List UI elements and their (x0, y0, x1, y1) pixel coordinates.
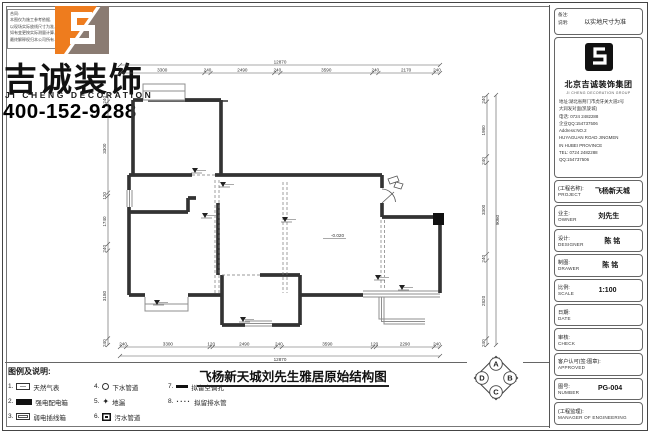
titleblock-field-date: 日期:DATE (554, 304, 643, 327)
field-label-cn: 审核: (558, 334, 575, 341)
dim-overall-label: 12870 (274, 60, 287, 65)
notes-label-2: 说明: (558, 19, 568, 27)
legend-item-label: 天然气表 (33, 382, 59, 392)
strong-box-icon (16, 399, 32, 405)
dim-label: 240 (102, 245, 107, 253)
dim-overall-label: 9060 (495, 214, 500, 225)
titleblock-company: 北京吉诚装饰集团 JI CHENG DECORATION GROUP 地址:湖北… (554, 37, 643, 178)
field-label-en: DRAWER (558, 266, 579, 271)
titleblock-notes: 备注: 说明: 以实地尺寸为准 (554, 8, 643, 35)
dim-label: 240 (102, 339, 107, 347)
titleblock-field-drawer: 制图:DRAWER陈 铭 (554, 254, 643, 277)
dim-label: 240 (119, 342, 127, 347)
dim-label: 240 (371, 68, 379, 73)
field-value: 陈 铭 (581, 260, 639, 270)
legend-item: 6.污水管道 (94, 410, 168, 423)
legend-item-label: 强电配电箱 (35, 397, 68, 407)
notes-value: 以实地尺寸为准 (571, 17, 639, 26)
legend-item-number: 4. (94, 383, 99, 390)
dim-label: 240 (204, 68, 212, 73)
legend-item: 4.下水管道 (94, 380, 168, 393)
field-label-en: SCALE (558, 291, 574, 296)
field-value: 1:100 (576, 287, 639, 294)
dim-label: 2290 (400, 342, 411, 347)
compass-label-a: A (493, 360, 499, 369)
company-addr2: 大润发对面(凯旋城) (559, 105, 638, 112)
field-label-cn: 业主: (558, 210, 577, 217)
dim-label: 120 (102, 192, 107, 200)
dim-label: 120 (207, 342, 215, 347)
dim-label: 240 (481, 254, 486, 262)
dim-label: 240 (433, 68, 441, 73)
dim-label: 120 (371, 342, 379, 347)
legend-item: 2.强电配电箱 (8, 395, 94, 408)
dim-label: 3300 (102, 143, 107, 154)
dim-label: 240 (102, 96, 107, 104)
field-label-en: OWNER (558, 217, 577, 222)
field-label-en: DESIGNER (558, 242, 584, 247)
titleblock-field-owner: 业主:OWNER刘先生 (554, 205, 643, 228)
gas-meter-icon (16, 383, 30, 390)
legend-item-number: 3. (8, 413, 13, 420)
company-addr1: 地址:湖北省荆门市虎牙关大道2号 (559, 98, 638, 105)
sewage-box-icon (102, 413, 111, 421)
field-label-en: CHECK (558, 341, 575, 346)
dim-label: 2170 (401, 68, 412, 73)
drawing-title: 飞杨新天城刘先生雅居原始结构图 (168, 366, 418, 385)
company-addr-en2: HUYAGUAN ROAD JINGMEN (559, 134, 638, 141)
dim-label: 2820 (481, 295, 486, 306)
legend-item-number: 8. (168, 398, 173, 405)
compass-label-b: B (507, 374, 513, 383)
titleblock-fields: (工程名称):PROJECT飞杨新天城业主:OWNER刘先生设计:DESIGNE… (554, 180, 643, 425)
field-label-en: PROJECT (558, 192, 584, 197)
floor-level-label: -0.020 (331, 233, 344, 238)
dotted-pipe-icon: ···· (176, 397, 191, 406)
company-tel-en: TEL: 0724 2482288 (559, 149, 638, 156)
company-name: 北京吉诚装饰集团 (557, 79, 640, 90)
company-qq-cn: 企业QQ:154737506 (559, 120, 638, 127)
field-label-cn: 日期: (558, 309, 571, 316)
weak-box-icon (16, 413, 30, 420)
titleblock-field-designer: 设计:DESIGNER陈 铭 (554, 229, 643, 252)
floor-plan: 1287033002402490240359024021702402403300… (100, 55, 550, 365)
field-value: 陈 铭 (586, 236, 639, 246)
field-label-en: MANAGER OF ENGINEERING (558, 415, 627, 420)
field-label-cn: 图号: (558, 383, 579, 390)
field-label-cn: 制图: (558, 259, 579, 266)
dim-label: 3300 (163, 342, 174, 347)
dim-label: 240 (273, 68, 281, 73)
dim-label: 240 (433, 342, 441, 347)
dim-label: 3300 (157, 68, 168, 73)
floor-drain-icon: ✦ (102, 398, 109, 406)
concrete-column (433, 213, 444, 225)
field-label-cn: 客户认可(签:图章): (558, 358, 601, 365)
titleblock-field-project: (工程名称):PROJECT飞杨新天城 (554, 180, 643, 203)
legend-item-number: 1. (8, 383, 13, 390)
dim-label: 2490 (239, 342, 250, 347)
dim-label: 3590 (321, 68, 332, 73)
jicheng-logo-icon (52, 4, 112, 58)
dim-label: 3590 (322, 342, 333, 347)
legend-item: 3.弱电插线箱 (8, 410, 94, 423)
compass-label-c: C (493, 388, 499, 397)
dim-label: 3300 (481, 204, 486, 215)
band-separator-right (523, 362, 549, 363)
dim-label: 3180 (102, 290, 107, 301)
dim-label: 1980 (481, 125, 486, 136)
dim-label: 240 (275, 342, 283, 347)
field-value: 飞杨新天城 (586, 186, 639, 196)
field-value: PG-004 (581, 385, 639, 392)
field-label-en: DATE (558, 316, 571, 321)
titleblock-field-number: 图号:NUMBERPG-004 (554, 378, 643, 401)
company-qq-en: QQ:154737506 (559, 156, 638, 163)
dim-label: 240 (481, 96, 486, 104)
entry-door-arc (382, 176, 403, 203)
title-block: 备注: 说明: 以实地尺寸为准 北京吉诚装饰集团 JI CHENG DECORA… (549, 5, 646, 428)
legend-item: 1.天然气表 (8, 380, 94, 393)
drain-circle-icon (102, 383, 109, 390)
company-addr-en3: IN HUBEI PROVINCE (559, 142, 638, 149)
legend-item-number: 2. (8, 398, 13, 405)
legend-item-label: 拟留排水管 (194, 397, 227, 407)
dim-label: 240 (481, 339, 486, 347)
drawing-sheet: 合同: 本图仅为施工参考依据,以现场实际放线尺寸为准,如有变更按实际测量计算,最… (0, 0, 650, 433)
titleblock-field-manager-of-engineering: (工程监理):MANAGER OF ENGINEERING (554, 402, 643, 425)
dim-label: 1740 (102, 216, 107, 227)
legend-item-number: 6. (94, 413, 99, 420)
legend-item-label: 地漏 (112, 397, 125, 407)
legend-item-label: 污水管道 (114, 412, 140, 422)
field-label-cn: 比例: (558, 284, 574, 291)
field-label-cn: (工程名称): (558, 185, 584, 192)
legend-item-label: 下水管道 (112, 382, 138, 392)
field-label-cn: (工程监理): (558, 408, 627, 415)
compass-label-d: D (479, 374, 485, 383)
compass-rose-icon: A B C D (470, 352, 522, 404)
titleblock-field-check: 审核:CHECK (554, 328, 643, 351)
legend-item: 5.✦地漏 (94, 395, 168, 408)
window-lines (127, 84, 440, 326)
field-label-cn: 设计: (558, 235, 584, 242)
dim-label: 240 (481, 157, 486, 165)
titleblock-field-scale: 比例:SCALE1:100 (554, 279, 643, 302)
field-label-en: APPROVED (558, 365, 601, 370)
company-name-en: JI CHENG DECORATION GROUP (557, 91, 640, 95)
ac-hole-icon (176, 385, 188, 389)
dim-label: 2490 (237, 68, 248, 73)
field-label-en: NUMBER (558, 390, 579, 395)
notes-label-1: 备注: (558, 11, 568, 19)
legend-item: 8.····拟留排水管 (168, 395, 264, 408)
company-tel-cn: 电话: 0724 2482288 (559, 113, 638, 120)
band-separator-left (5, 362, 467, 363)
field-value: 刘先生 (579, 211, 639, 221)
company-addr-en1: Address:NO.2 (559, 127, 638, 134)
legend-item-number: 5. (94, 398, 99, 405)
legend-item-label: 弱电插线箱 (33, 412, 66, 422)
titleblock-field-approved: 客户认可(签:图章):APPROVED (554, 353, 643, 376)
company-logo-icon (584, 42, 614, 72)
